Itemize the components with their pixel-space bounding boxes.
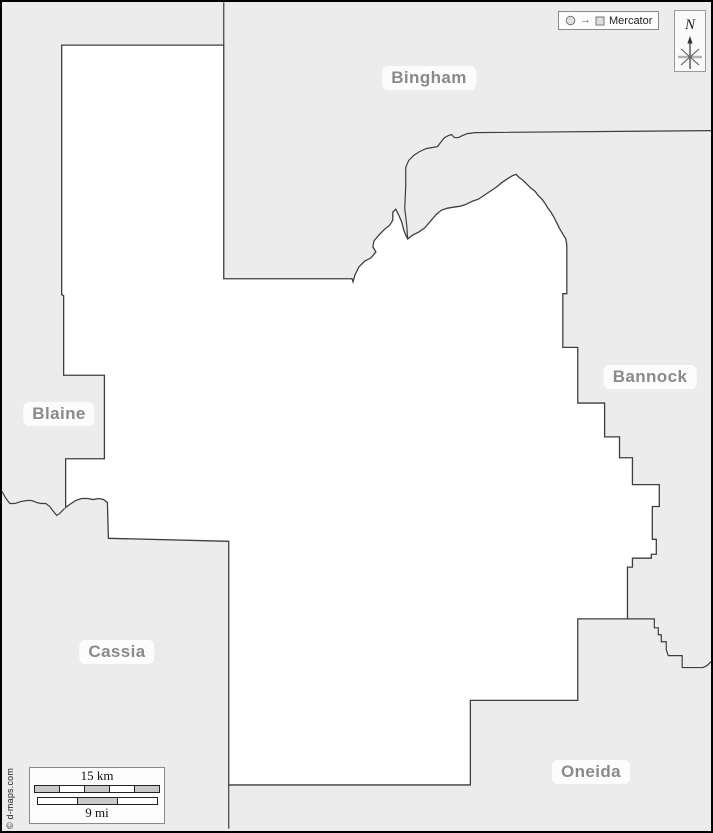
- circle-icon: [565, 15, 576, 26]
- scale-bar: 15 km 9 mi: [29, 767, 165, 824]
- scale-segment: [38, 798, 78, 804]
- scale-km-label: 15 km: [30, 768, 164, 783]
- mi-scale-bar: [37, 797, 158, 805]
- scale-segment: [78, 798, 118, 804]
- scale-mi-label: 9 mi: [30, 805, 164, 820]
- credit-text: © d-maps.com: [5, 757, 15, 829]
- county-label-blaine: Blaine: [23, 402, 94, 426]
- scale-segment: [60, 786, 85, 792]
- county-boundary-line: [627, 619, 711, 668]
- compass-north-label: N: [684, 17, 696, 33]
- projection-legend: → Mercator: [558, 11, 659, 30]
- scale-segment: [118, 798, 157, 804]
- scale-segment: [135, 786, 159, 792]
- county-label-oneida: Oneida: [552, 760, 630, 784]
- scale-segment: [110, 786, 135, 792]
- county-label-bannock: Bannock: [604, 365, 697, 389]
- compass-icon: N: [675, 11, 705, 71]
- compass-rose: N: [674, 10, 706, 72]
- projection-label: Mercator: [609, 15, 652, 27]
- square-icon: [595, 16, 605, 26]
- highlighted-county-shape: [62, 45, 660, 785]
- map-frame: BinghamBannockBlaineCassiaOneida → Merca…: [0, 0, 713, 833]
- arrow-icon: →: [580, 15, 591, 26]
- county-label-bingham: Bingham: [382, 66, 476, 90]
- km-scale-bar: [34, 785, 160, 793]
- county-boundary-line: [2, 492, 65, 516]
- map-svg: [2, 2, 711, 831]
- scale-segment: [35, 786, 60, 792]
- scale-segment: [85, 786, 110, 792]
- county-label-cassia: Cassia: [79, 640, 154, 664]
